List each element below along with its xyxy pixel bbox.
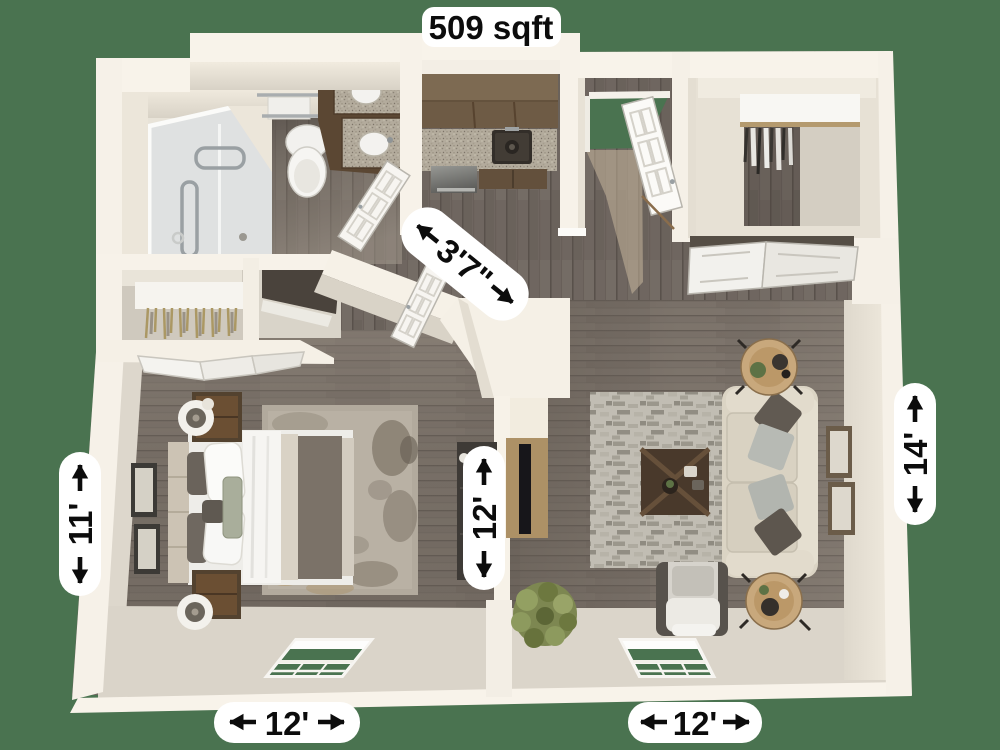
svg-text:11': 11' [62, 503, 99, 546]
svg-text:509 sqft: 509 sqft [429, 9, 554, 46]
svg-text:14': 14' [897, 432, 934, 477]
svg-text:12': 12' [265, 705, 310, 742]
svg-text:12': 12' [466, 496, 503, 541]
svg-text:12': 12' [673, 705, 718, 742]
